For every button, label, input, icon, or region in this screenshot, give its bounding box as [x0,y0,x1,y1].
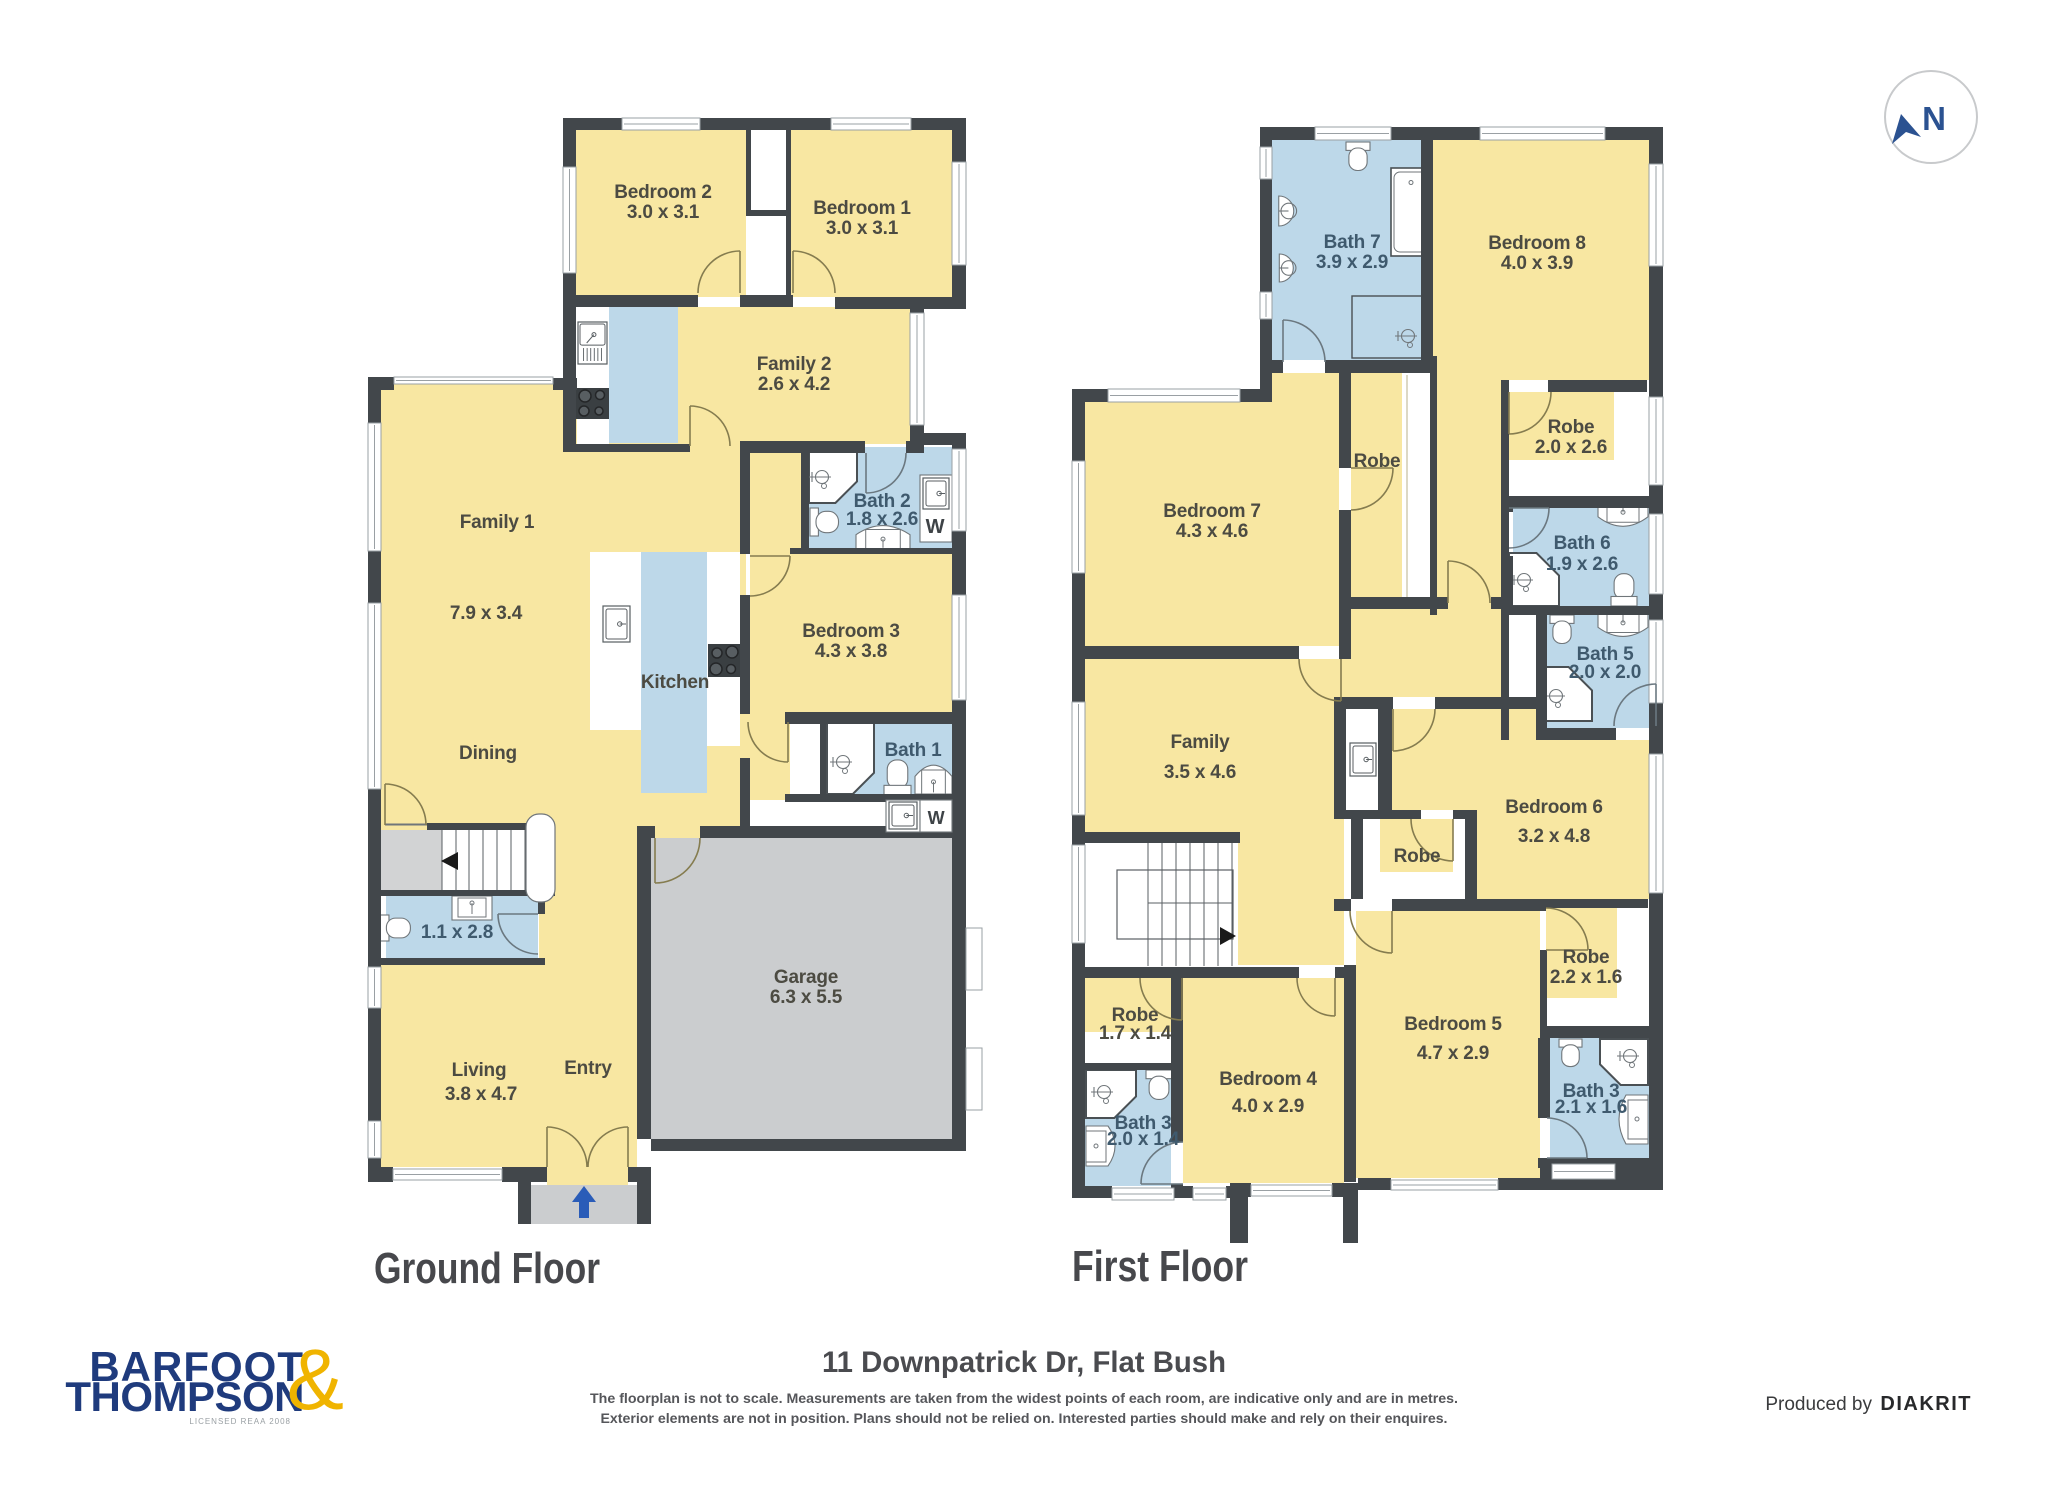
svg-text:2.6 x 4.2: 2.6 x 4.2 [758,374,830,395]
svg-text:Ground Floor: Ground Floor [374,1244,600,1293]
svg-text:Bedroom 1: Bedroom 1 [813,198,911,219]
svg-text:1.8 x 2.6: 1.8 x 2.6 [846,509,918,530]
svg-text:3.2 x 4.8: 3.2 x 4.8 [1518,826,1590,847]
svg-text:1.9 x 2.6: 1.9 x 2.6 [1546,554,1618,575]
svg-text:Entry: Entry [564,1058,612,1079]
svg-text:3.9 x 2.9: 3.9 x 2.9 [1316,252,1388,273]
svg-text:N: N [1922,100,1946,137]
svg-text:11 Downpatrick Dr, Flat Bush: 11 Downpatrick Dr, Flat Bush [822,1346,1226,1379]
svg-text:2.0 x 2.0: 2.0 x 2.0 [1569,662,1641,683]
svg-text:W: W [928,808,945,828]
svg-text:3.0 x 3.1: 3.0 x 3.1 [826,218,899,239]
svg-text:Garage: Garage [774,967,838,988]
svg-text:Dining: Dining [459,743,517,764]
svg-text:Bedroom 6: Bedroom 6 [1505,797,1602,818]
svg-text:4.0 x 3.9: 4.0 x 3.9 [1501,253,1573,274]
svg-text:Exterior elements are not in p: Exterior elements are not in position. P… [601,1410,1448,1426]
svg-text:4.0 x 2.9: 4.0 x 2.9 [1232,1096,1304,1117]
svg-text:Living: Living [452,1060,507,1081]
svg-text:LICENSED REAA 2008: LICENSED REAA 2008 [189,1417,291,1426]
svg-text:2.0 x 1.4: 2.0 x 1.4 [1107,1129,1180,1150]
svg-text:Family 2: Family 2 [757,354,831,375]
svg-text:The floorplan is not to scale.: The floorplan is not to scale. Measureme… [590,1390,1458,1406]
svg-text:Bedroom 4: Bedroom 4 [1219,1069,1317,1090]
svg-text:Robe: Robe [1394,846,1441,867]
svg-text:Bath 6: Bath 6 [1554,533,1611,554]
svg-text:2.2 x 1.6: 2.2 x 1.6 [1550,967,1622,988]
svg-text:2.0 x 2.6: 2.0 x 2.6 [1535,437,1607,458]
svg-text:Bedroom 3: Bedroom 3 [802,621,899,642]
svg-text:Bath 1: Bath 1 [885,740,943,761]
svg-text:Bedroom 8: Bedroom 8 [1488,233,1585,254]
svg-text:Family: Family [1171,732,1231,753]
svg-text:7.9 x 3.4: 7.9 x 3.4 [450,603,523,624]
svg-text:Robe: Robe [1563,947,1610,968]
svg-text:THOMPSON: THOMPSON [65,1373,304,1420]
svg-text:4.3 x 4.6: 4.3 x 4.6 [1176,521,1248,542]
svg-text:DIAKRIT: DIAKRIT [1880,1393,1972,1415]
svg-text:Produced by: Produced by [1765,1394,1872,1415]
svg-text:Bedroom 2: Bedroom 2 [614,182,711,203]
svg-text:4.3 x 3.8: 4.3 x 3.8 [815,641,887,662]
svg-text:3.5 x 4.6: 3.5 x 4.6 [1164,762,1236,783]
svg-text:Kitchen: Kitchen [641,672,709,693]
svg-text:&: & [287,1332,344,1428]
svg-text:Bath 7: Bath 7 [1324,232,1381,253]
svg-text:1.1 x 2.8: 1.1 x 2.8 [421,922,493,943]
svg-text:1.7 x 1.4: 1.7 x 1.4 [1099,1023,1172,1044]
svg-text:Bedroom 7: Bedroom 7 [1163,501,1260,522]
svg-text:Robe: Robe [1354,451,1401,472]
svg-text:W: W [926,516,945,538]
svg-text:6.3 x 5.5: 6.3 x 5.5 [770,987,843,1008]
svg-text:4.7 x 2.9: 4.7 x 2.9 [1417,1043,1489,1064]
svg-text:2.1 x 1.6: 2.1 x 1.6 [1555,1097,1627,1118]
svg-text:Bedroom 5: Bedroom 5 [1404,1014,1502,1035]
svg-text:Robe: Robe [1548,417,1595,438]
svg-text:3.0 x 3.1: 3.0 x 3.1 [627,202,700,223]
svg-text:First Floor: First Floor [1072,1242,1248,1291]
svg-text:3.8 x 4.7: 3.8 x 4.7 [445,1084,517,1105]
svg-text:Family 1: Family 1 [460,512,535,533]
